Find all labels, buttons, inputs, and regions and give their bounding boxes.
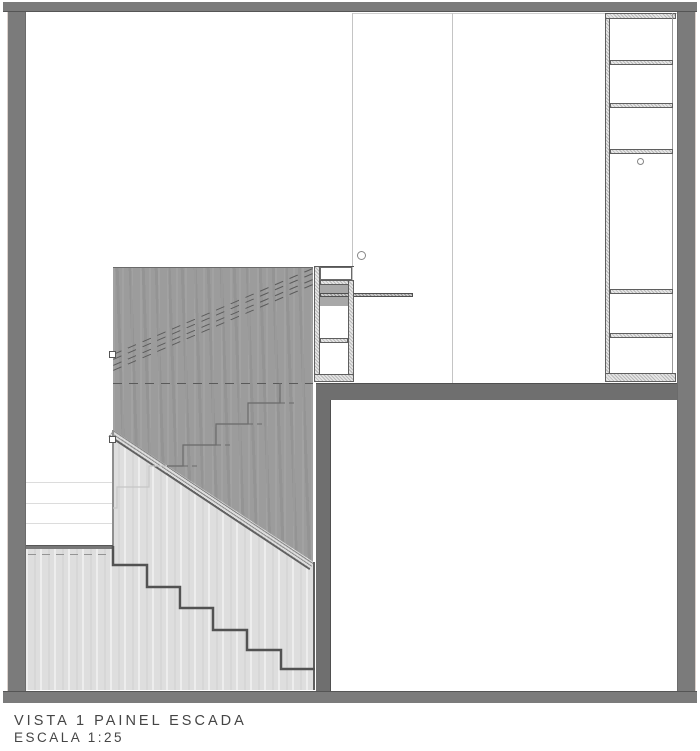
shelf [610,289,673,294]
hidden-stringer-dashed-line [113,283,315,371]
shelf-unit-right-edge [672,13,673,382]
hidden-stringer-dashed-line [113,267,315,355]
wall-right [677,12,696,691]
door-panel-divider [452,13,453,383]
middle-cabinet-section [314,266,354,382]
hidden-tread-line [26,523,113,524]
edge-marker-square [109,351,116,358]
shelf [610,149,673,154]
lower-wall-strip [316,400,331,691]
floor-level-dashed-line [113,383,313,384]
countertop-bar [320,293,413,297]
wall-left [7,12,26,691]
cabinet-side-panel [348,280,354,382]
shelf-unit-side-panel [605,18,610,382]
shelf [610,103,673,108]
hidden-stringer-dashed-line [113,272,315,360]
door-knob-circle [357,251,366,260]
panel-left-edge [112,430,114,549]
shelf-unit-top [605,13,676,19]
panel-right-edge [313,562,315,690]
landing-floor-strip [26,545,113,549]
drawing-scale: ESCALA 1:25 [14,730,124,745]
shelf [610,60,673,65]
hidden-tread-line [26,503,113,504]
cabinet-base [314,374,354,382]
floor-slab [316,383,677,400]
door-panel-edge-left [352,13,353,280]
shelf [610,333,673,338]
cabinet-top-box [320,267,352,280]
floor-hidden-dashed-line [28,554,113,555]
hidden-stringer-dashed-line [113,278,315,366]
right-shelf-unit [605,13,676,382]
shelf-unit-base [605,373,676,382]
cabinet-knob-circle [637,158,644,165]
wall-top [3,2,697,12]
wall-bottom [3,691,697,703]
drawing-sheet: VISTA 1 PAINEL ESCADA ESCALA 1:25 [0,0,700,751]
cabinet-shelf [320,338,348,343]
edge-marker-square [109,436,116,443]
hidden-tread-line [26,482,113,483]
drawing-title: VISTA 1 PAINEL ESCADA [14,713,247,729]
